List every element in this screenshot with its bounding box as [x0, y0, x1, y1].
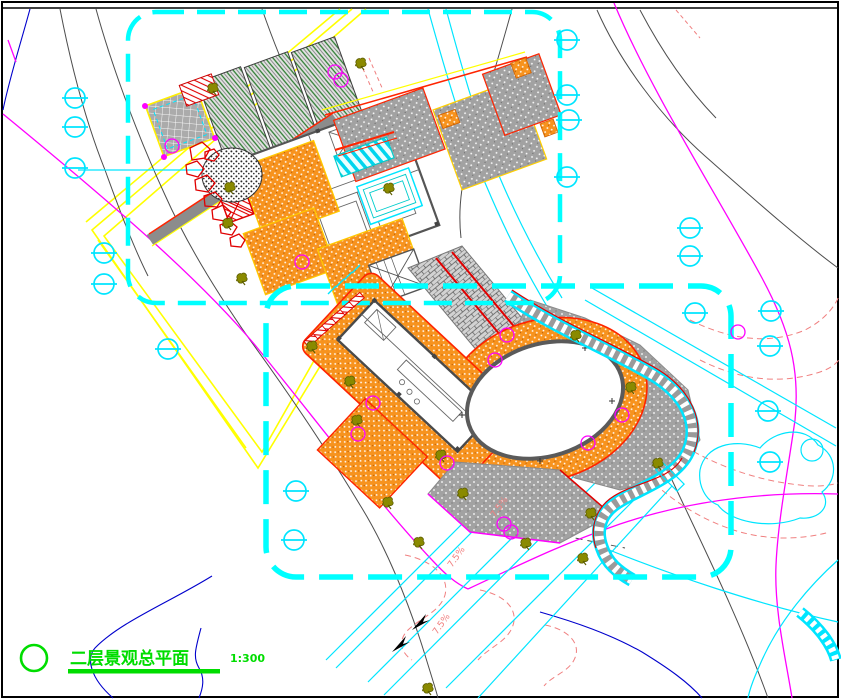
plan-title: 二层景观总平面: [70, 648, 189, 669]
title-underline: [68, 669, 220, 674]
scale-label: 1:300: [230, 652, 265, 665]
cad-canvas: 7.5% 7.5% 7.5% 二层景观总平面 1:300: [0, 0, 841, 700]
site-plan-drawing: 7.5% 7.5% 7.5% 二层景观总平面 1:300: [0, 0, 841, 700]
